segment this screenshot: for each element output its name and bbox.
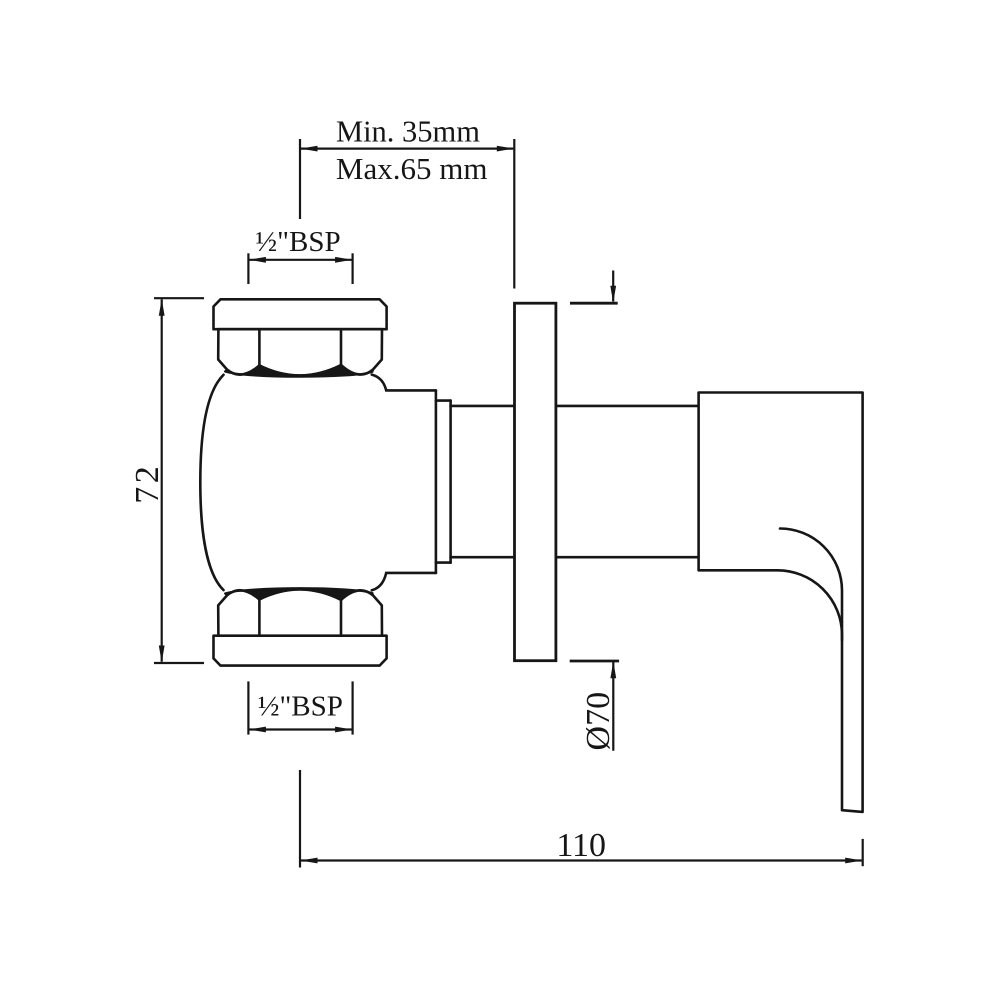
svg-text:Ø70: Ø70 — [580, 692, 617, 751]
svg-text:½"BSP: ½"BSP — [258, 691, 343, 723]
svg-text:72: 72 — [129, 463, 166, 504]
svg-text:110: 110 — [556, 827, 606, 864]
svg-text:Max.65 mm: Max.65 mm — [336, 151, 488, 186]
svg-text:½"BSP: ½"BSP — [255, 226, 340, 258]
svg-text:Min. 35mm: Min. 35mm — [336, 114, 480, 148]
